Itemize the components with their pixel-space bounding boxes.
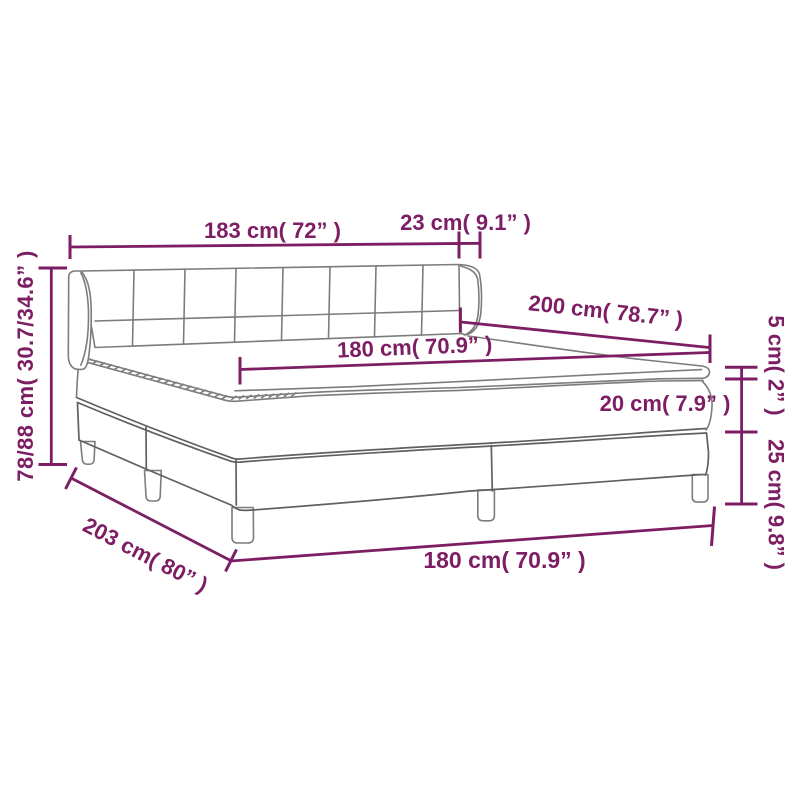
svg-text:20 cm( 7.9” ): 20 cm( 7.9” ): [600, 391, 731, 416]
svg-text:183 cm( 72” ): 183 cm( 72” ): [204, 218, 341, 243]
svg-text:5 cm( 2” ): 5 cm( 2” ): [764, 315, 789, 415]
svg-text:78/88 cm( 30.7/34.6” ): 78/88 cm( 30.7/34.6” ): [13, 250, 38, 481]
svg-text:180 cm( 70.9” ): 180 cm( 70.9” ): [423, 547, 585, 573]
svg-text:23 cm( 9.1” ): 23 cm( 9.1” ): [400, 210, 531, 235]
svg-text:25 cm( 9.8” ): 25 cm( 9.8” ): [764, 439, 789, 570]
